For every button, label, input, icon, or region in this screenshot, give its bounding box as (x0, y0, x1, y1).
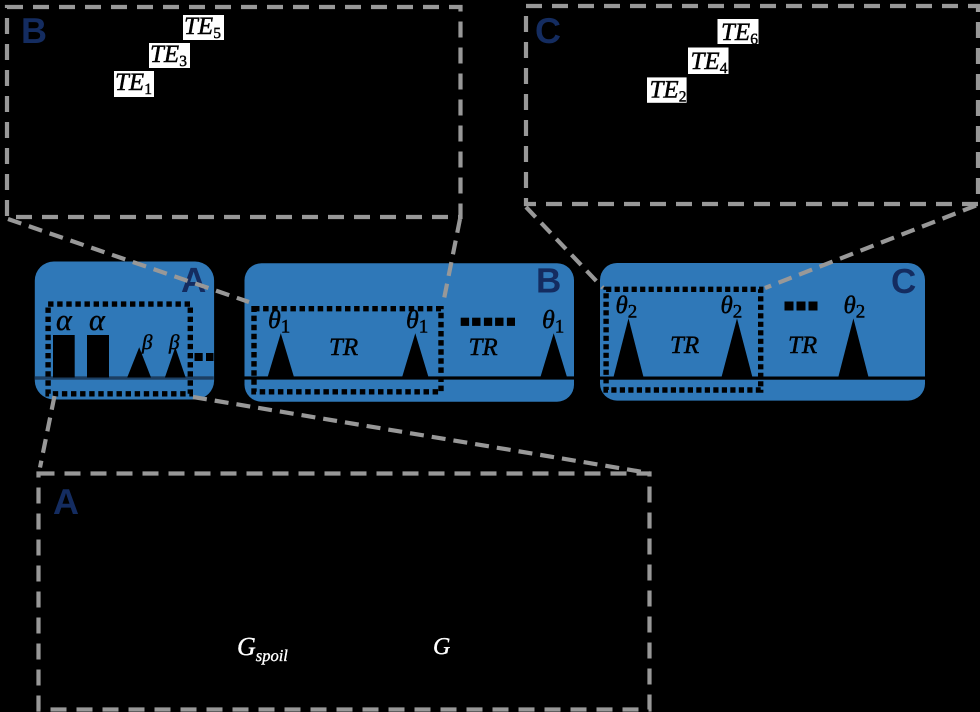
svg-text:B: B (536, 262, 561, 301)
svg-text:β: β (168, 330, 180, 354)
svg-text:TR: TR (670, 332, 699, 359)
svg-text:A: A (53, 481, 79, 522)
svg-text:C: C (891, 262, 916, 301)
svg-text:B: B (21, 10, 47, 51)
svg-text:C: C (535, 10, 561, 51)
svg-text:TR: TR (329, 334, 358, 361)
svg-text:β: β (141, 330, 153, 354)
svg-text:G: G (433, 634, 450, 660)
svg-text:TR: TR (788, 332, 817, 359)
svg-text:α: α (89, 304, 106, 337)
svg-text:α: α (56, 304, 73, 337)
svg-text:TR: TR (469, 334, 498, 361)
